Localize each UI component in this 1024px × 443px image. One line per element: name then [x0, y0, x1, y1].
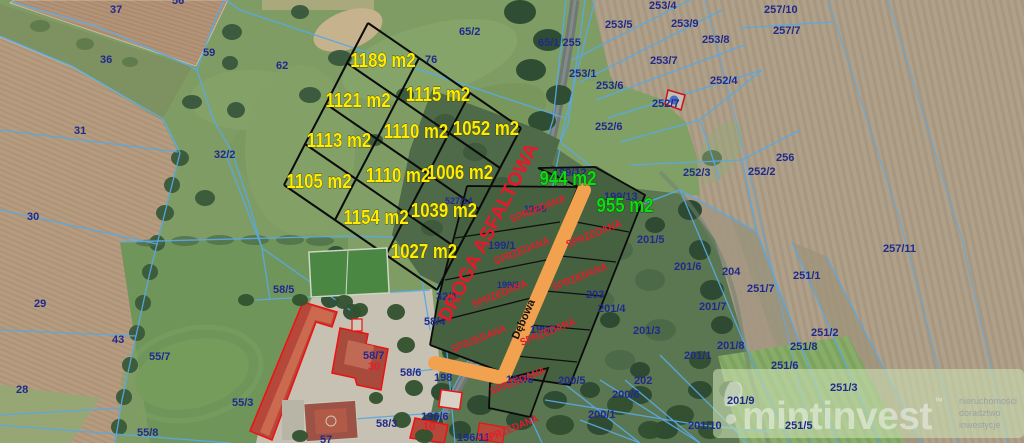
svg-text:252/7: 252/7: [652, 98, 680, 110]
svg-text:201/10: 201/10: [688, 420, 722, 432]
svg-text:1110 m2: 1110 m2: [366, 164, 430, 187]
svg-text:1113 m2: 1113 m2: [307, 129, 371, 152]
svg-text:inwestycje: inwestycje: [959, 420, 1001, 430]
svg-text:251/7: 251/7: [747, 283, 775, 295]
svg-text:253/8: 253/8: [702, 34, 730, 46]
svg-text:55/8: 55/8: [137, 427, 158, 439]
svg-text:256: 256: [776, 152, 794, 164]
svg-text:1052 m2: 1052 m2: [453, 117, 519, 140]
svg-text:251/6: 251/6: [771, 360, 799, 372]
svg-text:944 m2: 944 m2: [540, 167, 597, 190]
svg-text:65/2: 65/2: [459, 26, 480, 38]
svg-text:253/1: 253/1: [569, 68, 597, 80]
svg-text:201/9: 201/9: [727, 395, 755, 407]
svg-text:252/3: 252/3: [683, 167, 711, 179]
svg-text:253/4: 253/4: [649, 0, 677, 12]
svg-text:257/10: 257/10: [764, 4, 798, 16]
svg-text:1006 m2: 1006 m2: [427, 161, 493, 184]
svg-text:251/2: 251/2: [811, 327, 839, 339]
svg-text:32/2: 32/2: [214, 149, 235, 161]
svg-text:202: 202: [634, 375, 652, 387]
svg-text:201/7: 201/7: [699, 301, 727, 313]
svg-text:203: 203: [586, 289, 604, 301]
svg-text:200/6: 200/6: [612, 389, 640, 401]
svg-text:253/5: 253/5: [605, 19, 633, 31]
svg-text:1189 m2: 1189 m2: [350, 49, 415, 72]
svg-text:62: 62: [276, 60, 288, 72]
svg-text:252/6: 252/6: [595, 121, 623, 133]
svg-text:251/5: 251/5: [785, 420, 813, 432]
svg-text:253/6: 253/6: [596, 80, 624, 92]
svg-text:201/4: 201/4: [598, 303, 626, 315]
svg-text:55/3: 55/3: [232, 397, 253, 409]
svg-text:1039 m2: 1039 m2: [411, 199, 477, 222]
svg-text:76: 76: [425, 54, 437, 66]
svg-text:253/7: 253/7: [650, 55, 678, 67]
svg-text:201/3: 201/3: [633, 325, 661, 337]
svg-text:mintinvest: mintinvest: [742, 395, 933, 438]
svg-text:55/7: 55/7: [149, 351, 170, 363]
svg-text:253/9: 253/9: [671, 18, 699, 30]
svg-text:200/1: 200/1: [588, 409, 616, 421]
svg-text:29: 29: [34, 298, 46, 310]
svg-text:57: 57: [320, 434, 332, 443]
svg-text:1105 m2: 1105 m2: [286, 170, 351, 193]
svg-text:43: 43: [112, 334, 124, 346]
svg-text:201/1: 201/1: [684, 350, 712, 362]
svg-text:251/8: 251/8: [790, 341, 818, 353]
svg-text:955 m2: 955 m2: [597, 194, 654, 217]
svg-text:252/2: 252/2: [748, 166, 776, 178]
svg-text:65/1 255: 65/1 255: [538, 37, 581, 49]
svg-text:1027 m2: 1027 m2: [391, 240, 457, 263]
svg-text:58/6: 58/6: [400, 367, 421, 379]
svg-text:201/5: 201/5: [637, 234, 665, 246]
svg-text:252/4: 252/4: [710, 75, 738, 87]
svg-text:201/8: 201/8: [717, 340, 745, 352]
svg-text:204: 204: [722, 266, 741, 278]
svg-text:doradztwo: doradztwo: [959, 408, 1001, 418]
svg-text:251/1: 251/1: [793, 270, 821, 282]
svg-text:28: 28: [16, 384, 28, 396]
svg-text:200/5: 200/5: [558, 375, 586, 387]
svg-text:1115 m2: 1115 m2: [406, 83, 470, 106]
svg-text:10: 10: [423, 421, 435, 433]
svg-text:58/5: 58/5: [273, 284, 294, 296]
svg-text:nieruchomości: nieruchomości: [959, 396, 1017, 406]
svg-text:30: 30: [368, 361, 380, 373]
svg-text:™: ™: [934, 396, 943, 406]
svg-text:1110 m2: 1110 m2: [384, 120, 448, 143]
svg-text:257/7: 257/7: [773, 25, 801, 37]
svg-text:201/6: 201/6: [674, 261, 702, 273]
svg-text:1154 m2: 1154 m2: [343, 206, 408, 229]
svg-text:59: 59: [203, 47, 215, 59]
svg-text:31: 31: [74, 125, 86, 137]
svg-text:251/3: 251/3: [830, 382, 858, 394]
svg-text:56: 56: [172, 0, 184, 7]
svg-text:1121 m2: 1121 m2: [325, 89, 390, 112]
svg-text:58/3: 58/3: [376, 418, 397, 430]
svg-text:30: 30: [27, 211, 39, 223]
svg-text:198: 198: [434, 372, 452, 384]
svg-text:37: 37: [110, 4, 122, 16]
svg-text:36: 36: [100, 54, 112, 66]
svg-text:257/11: 257/11: [883, 243, 916, 255]
